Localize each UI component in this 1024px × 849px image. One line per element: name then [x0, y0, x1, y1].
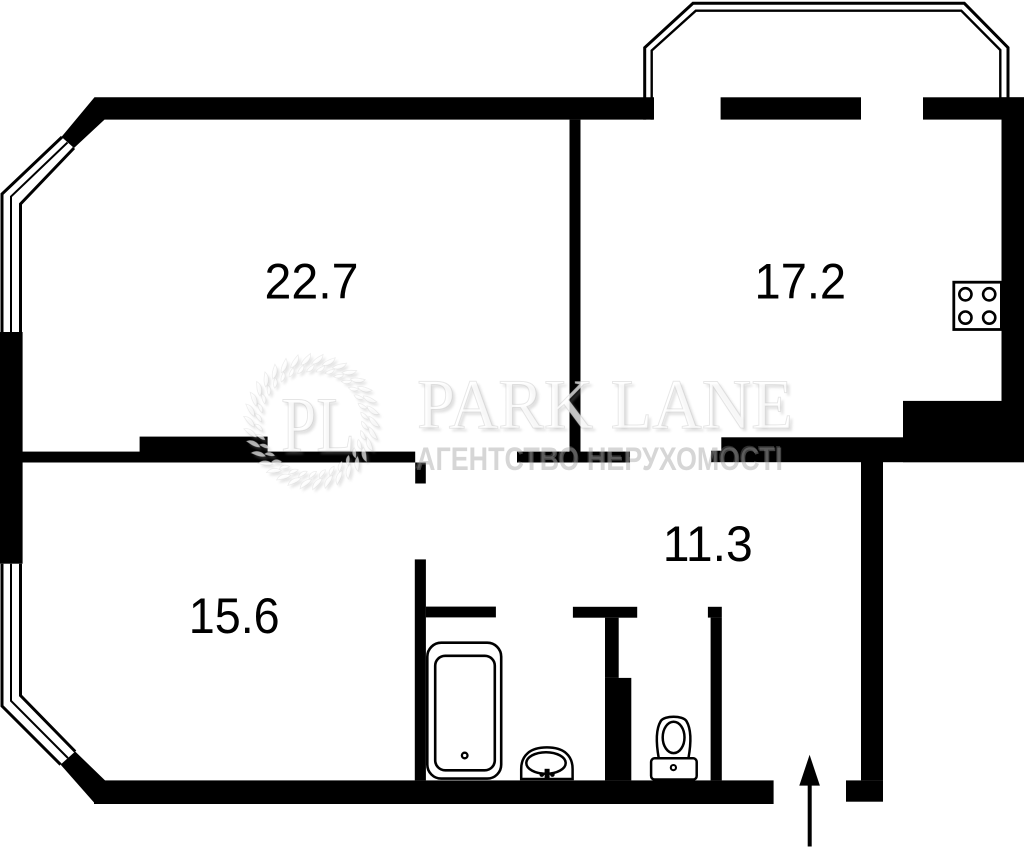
svg-text:15.6: 15.6: [189, 588, 280, 644]
svg-text:17.2: 17.2: [755, 254, 847, 310]
svg-text:22.7: 22.7: [265, 253, 359, 309]
svg-text:АГЕНТСТВО НЕРУХОМОСТІ: АГЕНТСТВО НЕРУХОМОСТІ: [416, 441, 783, 477]
svg-text:PARK LANE: PARK LANE: [417, 366, 793, 444]
svg-text:PL: PL: [281, 381, 355, 468]
svg-text:11.3: 11.3: [663, 516, 753, 572]
